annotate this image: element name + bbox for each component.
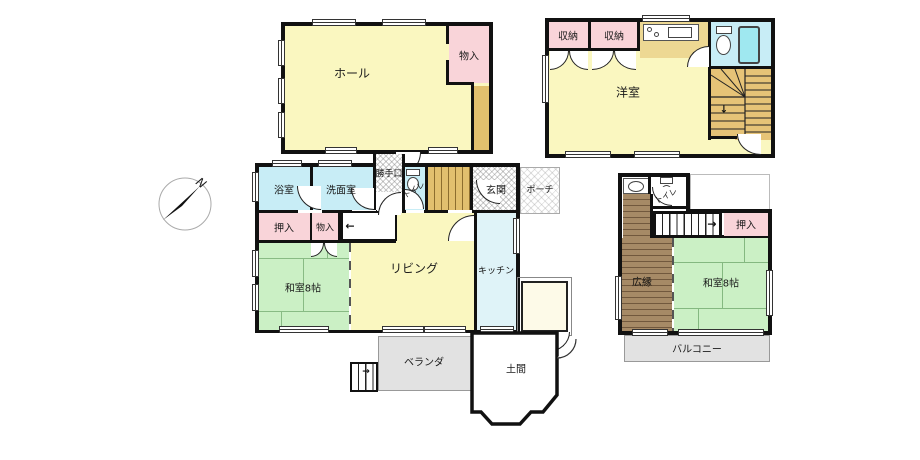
sliding-door-track bbox=[672, 238, 674, 331]
room-label-doma: 土間 bbox=[506, 361, 526, 376]
stair-arrow-2f: ↓ bbox=[720, 105, 728, 116]
tatami-line bbox=[674, 308, 768, 309]
door-opening bbox=[406, 210, 424, 213]
window bbox=[542, 55, 549, 103]
window bbox=[382, 19, 426, 26]
stove-burner-icon bbox=[647, 27, 652, 32]
stove-burner-icon bbox=[654, 32, 659, 37]
wall bbox=[711, 136, 737, 139]
room-label-porch: ポーチ bbox=[526, 183, 553, 196]
window bbox=[278, 40, 285, 66]
room-label-storage-b: 収納 bbox=[604, 28, 624, 43]
sliding-door-track bbox=[349, 243, 351, 330]
room-label-living: リビング bbox=[390, 260, 438, 277]
room-label-kitchen: キッチン bbox=[478, 264, 514, 277]
room-label-hall: ホール bbox=[334, 65, 370, 82]
stair-landing bbox=[711, 138, 735, 154]
wall bbox=[446, 26, 449, 44]
toilet-bowl-icon bbox=[716, 35, 731, 55]
window bbox=[325, 147, 357, 154]
wall bbox=[650, 194, 653, 238]
room-label-entrance: 玄関 bbox=[486, 182, 506, 197]
room-label-oshiire-2f: 押入 bbox=[736, 217, 756, 232]
window bbox=[252, 284, 259, 311]
room-label-balcony: バルコニー bbox=[672, 341, 722, 356]
steps-arrow: → bbox=[362, 367, 370, 377]
roof-outline bbox=[690, 174, 770, 212]
window bbox=[615, 276, 622, 320]
stair-upper-flight-1f bbox=[428, 167, 470, 210]
window bbox=[513, 218, 520, 254]
room-label-bath: 浴室 bbox=[274, 182, 294, 197]
toilet-tank-icon bbox=[406, 169, 420, 176]
wall bbox=[446, 82, 474, 85]
bathtub-icon bbox=[738, 26, 760, 64]
window bbox=[565, 151, 611, 158]
window bbox=[279, 326, 329, 333]
toilet-tank-icon bbox=[660, 177, 673, 184]
window bbox=[312, 19, 356, 26]
window bbox=[424, 326, 466, 333]
stair-arrow-2f-rear: → bbox=[707, 218, 716, 231]
wall bbox=[446, 60, 449, 83]
window bbox=[766, 270, 773, 316]
tatami-line bbox=[744, 238, 745, 262]
room-label-storage: 物入 bbox=[459, 48, 479, 63]
floor-plan: N ホール 物入 ← bbox=[0, 0, 920, 460]
stair-arrow-1f: ← bbox=[345, 220, 354, 233]
window bbox=[642, 15, 690, 22]
room-label-veranda: ベランダ bbox=[404, 354, 444, 369]
room-label-oshiire-1f: 押入 bbox=[274, 220, 294, 235]
window bbox=[252, 172, 259, 202]
window bbox=[278, 112, 285, 138]
wall bbox=[474, 213, 477, 333]
room-label-washroom: 洗面室 bbox=[326, 182, 356, 197]
window bbox=[252, 250, 259, 277]
tatami-line bbox=[698, 308, 699, 331]
annex-bay bbox=[521, 281, 568, 332]
annex-wood-strip bbox=[474, 86, 489, 150]
window bbox=[428, 147, 458, 154]
window bbox=[278, 78, 285, 104]
window bbox=[318, 160, 352, 167]
wall bbox=[471, 85, 474, 150]
window bbox=[632, 329, 668, 336]
doma-outline bbox=[464, 330, 589, 432]
tatami-line bbox=[674, 262, 768, 263]
washbasin-icon bbox=[628, 181, 644, 192]
tatami-line bbox=[259, 258, 349, 259]
room-label-washitsu-2f: 和室8帖 bbox=[703, 275, 739, 290]
window bbox=[272, 160, 302, 167]
window bbox=[634, 151, 680, 158]
toilet-tank-icon bbox=[716, 26, 732, 34]
room-label-hiroen: 広縁 bbox=[632, 274, 652, 289]
room-label-storage-a: 収納 bbox=[558, 28, 578, 43]
window bbox=[382, 326, 424, 333]
wall bbox=[648, 206, 688, 209]
compass: N bbox=[155, 172, 217, 234]
wall bbox=[310, 213, 312, 240]
wall bbox=[470, 163, 473, 210]
room-label-storage-1f: 物入 bbox=[316, 221, 334, 234]
room-label-western-room: 洋室 bbox=[616, 84, 640, 101]
hiroen-upper bbox=[623, 194, 650, 238]
wall bbox=[588, 22, 591, 51]
tatami-line bbox=[259, 311, 349, 312]
window bbox=[678, 329, 764, 336]
door-opening bbox=[448, 210, 472, 213]
sink-icon bbox=[668, 27, 692, 38]
room-label-backdoor: 勝手口 bbox=[375, 167, 402, 180]
room-label-washitsu-1f: 和室8帖 bbox=[285, 280, 321, 295]
